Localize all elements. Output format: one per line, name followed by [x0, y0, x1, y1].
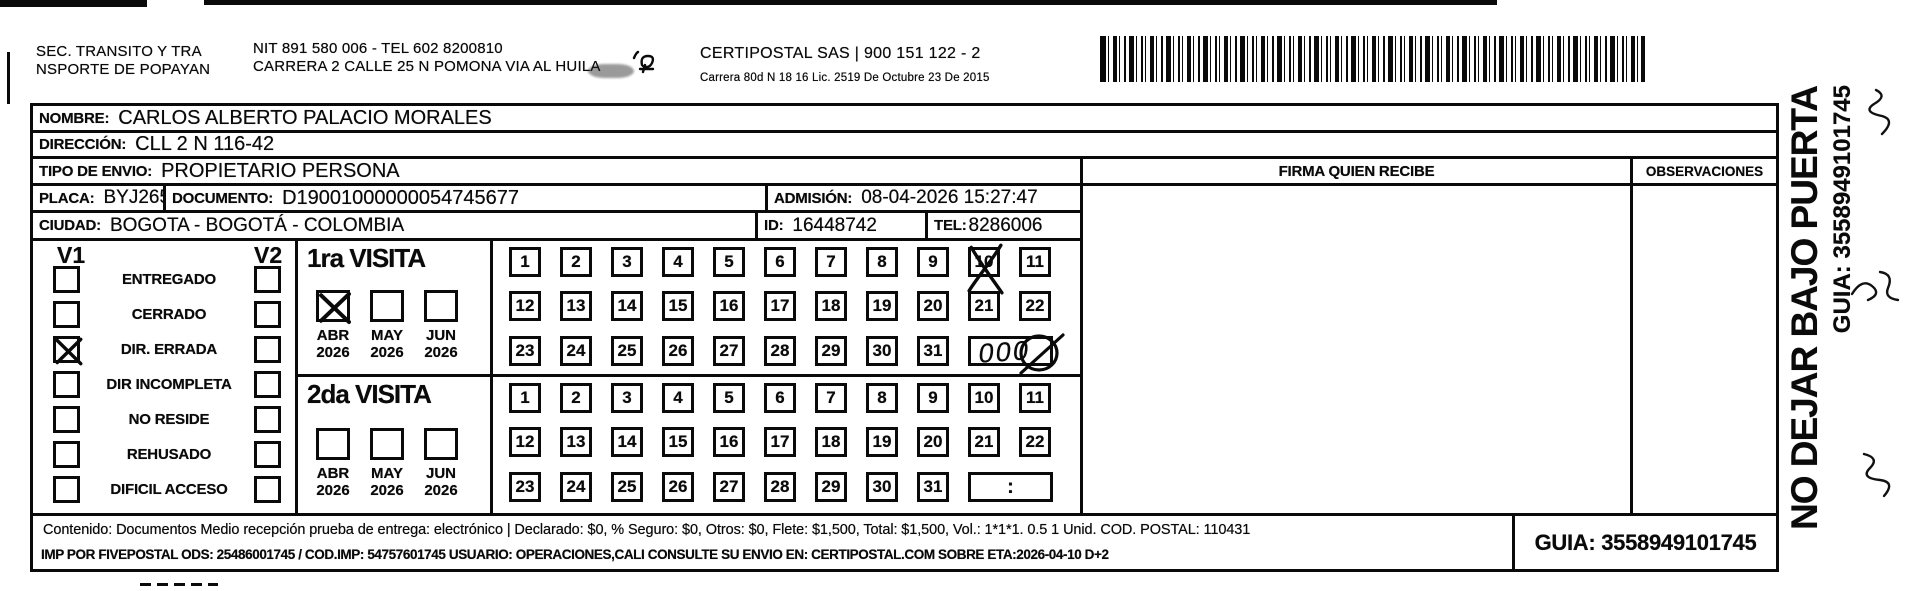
day-number: 24 — [567, 341, 586, 361]
day-number: 16 — [720, 296, 739, 316]
day-cell-2: 2 — [560, 247, 592, 277]
documento-cell: DOCUMENTO: D19001000000054745677 — [163, 183, 768, 213]
month-checkbox-abr — [316, 428, 350, 460]
day-cell-30: 30 — [866, 472, 898, 502]
documento-value: D19001000000054745677 — [282, 187, 519, 210]
day-number: 17 — [771, 432, 790, 452]
footer-imp-line: IMP POR FIVEPOSTAL ODS: 25486001745 / CO… — [41, 547, 1109, 562]
day-cell-1: 1 — [509, 383, 541, 413]
observaciones-label: OBSERVACIONES — [1646, 164, 1763, 179]
day-number: 6 — [775, 252, 784, 272]
id-value: 16448742 — [792, 215, 877, 237]
status-row-no-reside: NO RESIDE — [33, 406, 295, 436]
day-cell-13: 13 — [560, 427, 592, 457]
firma-header-label: FIRMA QUIEN RECIBE — [1279, 163, 1435, 180]
day-cell-24: 24 — [560, 336, 592, 366]
month-year: 2026 — [306, 482, 360, 499]
day-cell-16: 16 — [713, 291, 745, 321]
v2-checkbox-dificil-acceso — [254, 476, 281, 503]
status-row-cerrado: CERRADO — [33, 301, 295, 331]
month-year: 2026 — [306, 344, 360, 361]
day-cell-19: 19 — [866, 427, 898, 457]
day-cell-22: 22 — [1019, 427, 1051, 457]
day-number: 28 — [771, 341, 790, 361]
scan-artifact-scribble — [1856, 448, 1906, 500]
day-cell-14: 14 — [611, 427, 643, 457]
day-cell-13: 13 — [560, 291, 592, 321]
day-cell-11: 11 — [1019, 247, 1051, 277]
day-cell-4: 4 — [662, 247, 694, 277]
tipo-envio-value: PROPIETARIO PERSONA — [161, 160, 400, 183]
visit1-months: ABR2026MAY2026JUN2026 — [298, 290, 490, 375]
day-number: 22 — [1026, 296, 1045, 316]
day-number: 18 — [822, 432, 841, 452]
day-number: 13 — [567, 432, 586, 452]
admision-label: ADMISIÓN: — [774, 190, 852, 207]
day-number: 11 — [1026, 252, 1044, 272]
v1-header: V1 — [57, 242, 85, 269]
time-colon: : — [1007, 476, 1014, 499]
day-number: 19 — [873, 432, 892, 452]
day-cell-3: 3 — [611, 383, 643, 413]
scan-edge-bar-left — [0, 0, 147, 7]
day-number: 25 — [618, 341, 637, 361]
day-cell-16: 16 — [713, 427, 745, 457]
nombre-value: CARLOS ALBERTO PALACIO MORALES — [118, 107, 491, 130]
day-number: 25 — [618, 477, 637, 497]
day-number: 29 — [822, 341, 841, 361]
day-number: 16 — [720, 432, 739, 452]
v2-checkbox-rehusado — [254, 441, 281, 468]
day-number: 21 — [975, 432, 994, 452]
scan-edge-line — [7, 52, 10, 104]
day-cell-10: 10 — [968, 383, 1000, 413]
day-cell-6: 6 — [764, 383, 796, 413]
status-label-no-reside: NO RESIDE — [85, 411, 253, 428]
day-number: 30 — [873, 477, 892, 497]
day-cell-21: 21 — [968, 427, 1000, 457]
day-number: 3 — [622, 252, 631, 272]
day-cell-7: 7 — [815, 247, 847, 277]
day-number: 31 — [924, 477, 943, 497]
day-cell-6: 6 — [764, 247, 796, 277]
visit2-calendar: 1234567891011121314151617181920212223242… — [490, 374, 1083, 516]
day-cell-8: 8 — [866, 383, 898, 413]
day-number: 1 — [520, 252, 529, 272]
visit2-box: 2da VISITA ABR2026MAY2026JUN2026 — [295, 374, 493, 516]
v1-checkbox-dir-incompleta — [53, 371, 80, 398]
day-number: 27 — [720, 341, 739, 361]
day-number: 15 — [669, 432, 688, 452]
month-checkbox-may — [370, 290, 404, 322]
direccion-label: DIRECCIÓN: — [39, 136, 126, 153]
tipo-envio-label: TIPO DE ENVIO: — [39, 163, 152, 180]
visit1-title: 1ra VISITA — [307, 243, 425, 274]
v1-checkbox-cerrado — [53, 301, 80, 328]
day-number: 6 — [775, 388, 784, 408]
day-number: 12 — [516, 432, 535, 452]
day-number: 2 — [571, 252, 580, 272]
sender-name: SEC. TRANSITO Y TRANSPORTE DE POPAYAN — [36, 43, 210, 79]
day-cell-21: 21 — [968, 291, 1000, 321]
v1-checkbox-entregado — [53, 266, 80, 293]
footer-box: Contenido: Documentos Medio recepción pr… — [30, 513, 1515, 572]
v2-checkbox-dir-errada — [254, 336, 281, 363]
day-cell-19: 19 — [866, 291, 898, 321]
observaciones-header: OBSERVACIONES — [1630, 156, 1779, 186]
day-number: 4 — [673, 252, 682, 272]
tipo-envio-cell: TIPO DE ENVIO: PROPIETARIO PERSONA — [30, 156, 1083, 186]
documento-label: DOCUMENTO: — [172, 190, 273, 207]
day-cell-26: 26 — [662, 472, 694, 502]
scan-artifact-scribble — [1846, 264, 1902, 310]
month-checkbox-jun — [424, 290, 458, 322]
origin-contact: NIT 891 580 006 - TEL 602 8200810CARRERA… — [253, 40, 601, 76]
day-number: 31 — [924, 341, 943, 361]
ciudad-cell: CIUDAD: BOGOTA - BOGOTÁ - COLOMBIA — [30, 210, 758, 241]
v1-checkbox-dir-errada — [53, 336, 80, 363]
tel-value: 8286006 — [969, 215, 1043, 237]
ciudad-value: BOGOTA - BOGOTÁ - COLOMBIA — [110, 215, 404, 237]
direccion-value: CLL 2 N 116-42 — [135, 133, 274, 156]
day-cell-25: 25 — [611, 336, 643, 366]
day-number: 23 — [516, 477, 535, 497]
day-number: 20 — [924, 432, 943, 452]
day-cell-7: 7 — [815, 383, 847, 413]
scan-dash-mark — [140, 583, 218, 586]
observaciones-area — [1630, 183, 1779, 516]
day-number: 11 — [1026, 388, 1044, 408]
visit1-box: 1ra VISITA ABR2026MAY2026JUN2026 — [295, 238, 493, 377]
day-cell-11: 11 — [1019, 383, 1051, 413]
ink-smudge — [588, 64, 634, 78]
status-label-dificil-acceso: DIFICIL ACCESO — [85, 481, 253, 498]
tel-label: TEL: — [934, 217, 967, 234]
day-cell-23: 23 — [509, 336, 541, 366]
day-cell-15: 15 — [662, 291, 694, 321]
month-label: MAY — [360, 327, 414, 344]
status-label-dir-incompleta: DIR INCOMPLETA — [85, 376, 253, 393]
day-number: 4 — [673, 388, 682, 408]
month-year: 2026 — [414, 482, 468, 499]
day-number: 27 — [720, 477, 739, 497]
month-checkbox-may — [370, 428, 404, 460]
time-box: : — [968, 472, 1053, 502]
month-checkbox-jun — [424, 428, 458, 460]
scan-edge-bar-main — [204, 0, 1497, 5]
sender-line1: SEC. TRANSITO Y TRA — [36, 43, 202, 60]
month-checkbox-abr — [316, 290, 350, 322]
day-number: 26 — [669, 477, 688, 497]
day-number: 5 — [724, 388, 733, 408]
handwritten-loop — [965, 331, 1069, 377]
admision-value: 08-04-2026 15:27:47 — [861, 187, 1037, 209]
day-cell-18: 18 — [815, 427, 847, 457]
day-number: 5 — [724, 252, 733, 272]
placa-value: BYJ265 — [103, 187, 170, 209]
status-panel: V1 V2 ENTREGADOCERRADODIR. ERRADADIR INC… — [30, 238, 298, 516]
day-number: 28 — [771, 477, 790, 497]
status-label-dir-errada: DIR. ERRADA — [85, 341, 253, 358]
v2-checkbox-no-reside — [254, 406, 281, 433]
day-number: 9 — [928, 388, 937, 408]
day-number: 15 — [669, 296, 688, 316]
month-label: MAY — [360, 465, 414, 482]
v1-checkbox-dificil-acceso — [53, 476, 80, 503]
status-row-dificil-acceso: DIFICIL ACCESO — [33, 476, 295, 506]
v2-checkbox-cerrado — [254, 301, 281, 328]
day-cell-1: 1 — [509, 247, 541, 277]
status-row-dir-errada: DIR. ERRADA — [33, 336, 295, 366]
guia-box: GUIA: 3558949101745 — [1512, 513, 1779, 572]
guia-number: GUIA: 3558949101745 — [1535, 530, 1757, 556]
handwritten-x-mark — [971, 250, 997, 274]
day-number: 3 — [622, 388, 631, 408]
placa-cell: PLACA: BYJ265 — [30, 183, 166, 213]
day-cell-9: 9 — [917, 247, 949, 277]
day-number: 18 — [822, 296, 841, 316]
day-number: 26 — [669, 341, 688, 361]
day-number: 10 — [975, 388, 994, 408]
visit2-title: 2da VISITA — [307, 379, 431, 410]
month-year: 2026 — [360, 482, 414, 499]
v2-header: V2 — [254, 242, 282, 269]
day-cell-24: 24 — [560, 472, 592, 502]
day-number: 14 — [618, 296, 637, 316]
day-cell-4: 4 — [662, 383, 694, 413]
direccion-row: DIRECCIÓN: CLL 2 N 116-42 — [30, 130, 1779, 159]
day-number: 24 — [567, 477, 586, 497]
day-cell-28: 28 — [764, 472, 796, 502]
day-cell-18: 18 — [815, 291, 847, 321]
day-cell-31: 31 — [917, 336, 949, 366]
day-number: 12 — [516, 296, 535, 316]
footer-content-line: Contenido: Documentos Medio recepción pr… — [43, 522, 1250, 538]
day-number: 30 — [873, 341, 892, 361]
day-cell-3: 3 — [611, 247, 643, 277]
firma-signature-area — [1080, 183, 1633, 516]
status-label-entregado: ENTREGADO — [85, 271, 253, 288]
stamp-icon — [630, 50, 658, 76]
no-dejar-bajo-puerta-warning: NO DEJAR BAJO PUERTA — [1782, 85, 1828, 530]
day-cell-5: 5 — [713, 383, 745, 413]
day-number: 22 — [1026, 432, 1045, 452]
carrier-license: Carrera 80d N 18 16 Lic. 2519 De Octubre… — [700, 69, 990, 87]
day-cell-26: 26 — [662, 336, 694, 366]
nombre-row: NOMBRE: CARLOS ALBERTO PALACIO MORALES — [30, 103, 1779, 133]
day-number: 23 — [516, 341, 535, 361]
v2-checkbox-dir-incompleta — [254, 371, 281, 398]
origin-line1: NIT 891 580 006 - TEL 602 8200810 — [253, 40, 503, 57]
month-label: JUN — [414, 327, 468, 344]
visit2-months: ABR2026MAY2026JUN2026 — [298, 428, 490, 513]
admision-cell: ADMISIÓN: 08-04-2026 15:27:47 — [765, 183, 1083, 213]
day-number: 29 — [822, 477, 841, 497]
day-cell-25: 25 — [611, 472, 643, 502]
day-number: 21 — [975, 296, 994, 316]
month-label: ABR — [306, 465, 360, 482]
v1-checkbox-rehusado — [53, 441, 80, 468]
day-number: 1 — [520, 388, 529, 408]
month-year: 2026 — [360, 344, 414, 361]
day-cell-22: 22 — [1019, 291, 1051, 321]
day-cell-5: 5 — [713, 247, 745, 277]
day-cell-20: 20 — [917, 291, 949, 321]
day-number: 17 — [771, 296, 790, 316]
month-year: 2026 — [414, 344, 468, 361]
scan-artifact-scribble — [1866, 86, 1904, 140]
day-number: 9 — [928, 252, 937, 272]
day-cell-30: 30 — [866, 336, 898, 366]
barcode — [1100, 36, 1645, 82]
status-row-entregado: ENTREGADO — [33, 266, 295, 296]
day-cell-29: 29 — [815, 472, 847, 502]
time-box: 000 — [968, 336, 1053, 366]
v1-checkbox-no-reside — [53, 406, 80, 433]
day-number: 8 — [877, 252, 886, 272]
day-cell-9: 9 — [917, 383, 949, 413]
nombre-label: NOMBRE: — [39, 110, 109, 127]
day-cell-14: 14 — [611, 291, 643, 321]
day-cell-17: 17 — [764, 291, 796, 321]
carrier-name: CERTIPOSTAL SAS | 900 151 122 - 2 — [700, 45, 981, 63]
day-cell-28: 28 — [764, 336, 796, 366]
day-cell-15: 15 — [662, 427, 694, 457]
month-label: JUN — [414, 465, 468, 482]
day-cell-12: 12 — [509, 291, 541, 321]
day-cell-2: 2 — [560, 383, 592, 413]
day-number: 14 — [618, 432, 637, 452]
day-number: 19 — [873, 296, 892, 316]
day-cell-23: 23 — [509, 472, 541, 502]
day-number: 8 — [877, 388, 886, 408]
day-cell-31: 31 — [917, 472, 949, 502]
day-number: 13 — [567, 296, 586, 316]
day-cell-8: 8 — [866, 247, 898, 277]
day-cell-29: 29 — [815, 336, 847, 366]
tel-cell: TEL: 8286006 — [925, 210, 1083, 241]
day-number: 20 — [924, 296, 943, 316]
day-cell-27: 27 — [713, 336, 745, 366]
placa-label: PLACA: — [39, 190, 94, 207]
day-number: 7 — [826, 388, 835, 408]
day-cell-20: 20 — [917, 427, 949, 457]
day-number: 7 — [826, 252, 835, 272]
status-label-cerrado: CERRADO — [85, 306, 253, 323]
firma-header: FIRMA QUIEN RECIBE — [1080, 156, 1633, 186]
id-cell: ID: 16448742 — [755, 210, 928, 241]
status-row-rehusado: REHUSADO — [33, 441, 295, 471]
status-label-rehusado: REHUSADO — [85, 446, 253, 463]
sender-line2: NSPORTE DE POPAYAN — [36, 61, 210, 78]
month-label: ABR — [306, 327, 360, 344]
v2-checkbox-entregado — [254, 266, 281, 293]
origin-line2: CARRERA 2 CALLE 25 N POMONA VIA AL HUILA — [253, 58, 601, 75]
id-label: ID: — [764, 217, 783, 234]
status-row-dir-incompleta: DIR INCOMPLETA — [33, 371, 295, 401]
day-cell-27: 27 — [713, 472, 745, 502]
visit1-calendar: 1234567891011121314151617181920212223242… — [490, 238, 1083, 377]
day-cell-12: 12 — [509, 427, 541, 457]
day-number: 2 — [571, 388, 580, 408]
day-cell-17: 17 — [764, 427, 796, 457]
day-cell-10: 10 — [968, 247, 1000, 277]
scanned-delivery-form: SEC. TRANSITO Y TRANSPORTE DE POPAYAN NI… — [0, 0, 1909, 591]
ciudad-label: CIUDAD: — [39, 217, 101, 234]
